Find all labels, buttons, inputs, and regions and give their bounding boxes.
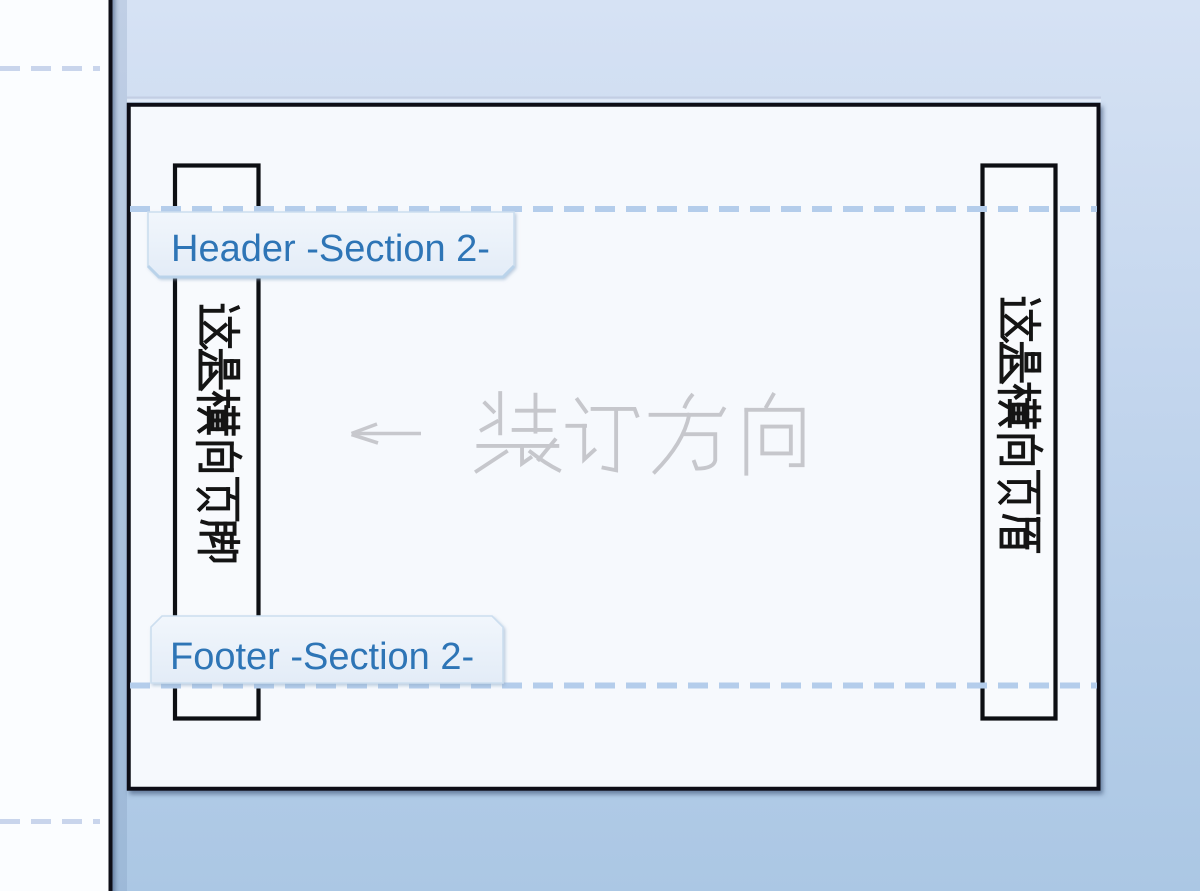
svg-text:Footer -Section 2-: Footer -Section 2- (170, 636, 474, 678)
svg-text:Header -Section 2-: Header -Section 2- (171, 228, 490, 270)
